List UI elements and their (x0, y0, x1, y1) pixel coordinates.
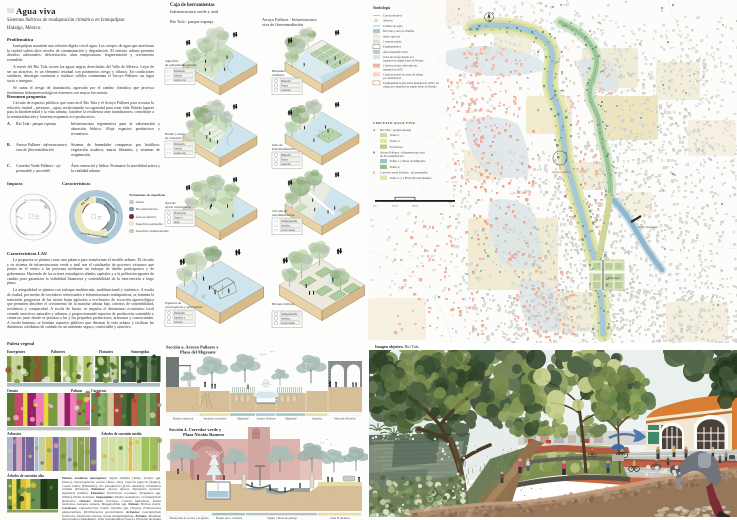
svg-text:inundación según Atlas de Ries: inundación según Atlas de Riesgo (383, 59, 424, 63)
svg-text:Fuente comercial: Fuente comercial (173, 417, 194, 421)
svg-text:efecto comunitario: efecto comunitario (165, 205, 191, 209)
svg-text:Semipermeable: Semipermeable (281, 220, 298, 223)
svg-text:Permeable: Permeable (174, 70, 186, 73)
svg-text:Equipamientos: Equipamientos (383, 45, 402, 49)
svg-text:Andador: Andador (312, 417, 323, 421)
svg-text:Franco: Franco (281, 85, 289, 88)
svg-text:Andador recreativo: Andador recreativo (203, 417, 227, 421)
svg-text:Fuente seca / Cisterna: Fuente seca / Cisterna (216, 516, 243, 520)
svg-text:de fitorremediación: de fitorremediación (380, 154, 404, 158)
svg-text:Plaza Nicolás Romero: Plaza Nicolás Romero (183, 432, 225, 437)
svg-text:inundación t100: inundación t100 (383, 67, 403, 71)
svg-text:Producción: Producción (174, 212, 187, 215)
svg-text:Río Tula y Arroyo Padilla: Río Tula y Arroyo Padilla (383, 29, 415, 33)
svg-text:Tramo 2: Tramo 2 (390, 165, 401, 169)
svg-text:riesgo por inundación según At: riesgo por inundación según Atlas de Rie… (383, 85, 437, 89)
svg-text:Tramo 2: Tramo 2 (390, 139, 401, 143)
svg-text:aireación: aireación (281, 89, 291, 92)
svg-text:A: A (372, 128, 375, 132)
svg-text:fitorremediación: fitorremediación (272, 147, 295, 151)
svg-text:Ecobarrios: Ecobarrios (390, 145, 404, 149)
svg-text:Humedal: Humedal (281, 154, 291, 157)
svg-text:0 m: 0 m (373, 205, 377, 208)
svg-text:aireación: aireación (281, 163, 291, 166)
svg-text:Permeable: Permeable (174, 143, 186, 146)
svg-text:acceso medio: acceso medio (281, 322, 296, 325)
svg-text:Área inundable t100: Área inundable t100 (383, 49, 408, 54)
svg-text:Árboles: Árboles (383, 18, 393, 23)
svg-text:Semipermeable: Semipermeable (281, 313, 298, 316)
svg-text:de adoquinado esponja: de adoquinado esponja (165, 63, 197, 67)
svg-text:Suelo agrícola: Suelo agrícola (383, 34, 401, 38)
svg-text:Brumas hídricas: Brumas hídricas (272, 302, 295, 306)
svg-text:Simbología: Simbología (373, 6, 390, 10)
svg-text:Humedal: Humedal (238, 417, 249, 421)
svg-text:de retención: de retención (165, 136, 182, 140)
svg-text:terreno alto: terreno alto (174, 79, 187, 82)
svg-text:Canales de agua: Canales de agua (383, 24, 403, 28)
svg-text:Andador,: Andador, (281, 318, 291, 321)
svg-text:Río Tula - parque esponja: Río Tula - parque esponja (380, 128, 412, 132)
svg-text:Tramo 1: Tramo 1 (390, 133, 401, 137)
svg-text:Curvas de nivel: Curvas de nivel (383, 14, 402, 18)
svg-text:Corredor verde Pallares - eje: Corredor verde Pallares - eje permeable (380, 171, 428, 175)
svg-text:por inundación: por inundación (383, 76, 402, 80)
svg-text:Arroyo Pallares: Arroyo Pallares (257, 417, 277, 421)
svg-text:250 m: 250 m (392, 205, 398, 208)
svg-text:Humedal: Humedal (286, 417, 297, 421)
svg-text:Andador y: Andador y (174, 317, 186, 320)
svg-text:500 m: 500 m (412, 205, 418, 208)
svg-text:Calle N. Romero: Calle N. Romero (330, 516, 351, 520)
svg-text:Jagüey / Plaza de garrige: Jagüey / Plaza de garrige (267, 516, 298, 520)
svg-text:Andador,: Andador, (281, 225, 291, 228)
svg-text:Permeable: Permeable (174, 312, 186, 315)
svg-text:acceso medio: acceso medio (281, 229, 296, 232)
svg-text:arboreto: arboreto (174, 321, 183, 324)
svg-text:N: N (492, 11, 495, 15)
svg-text:movilidad activa: movilidad activa (272, 213, 295, 217)
svg-text:1 km: 1 km (450, 205, 455, 208)
svg-text:Mercado Morelos: Mercado Morelos (334, 417, 356, 421)
svg-text:Ornato y: Ornato y (174, 217, 184, 220)
svg-text:Plaza del Migrante: Plaza del Migrante (180, 350, 216, 355)
svg-text:Tramo 1 y 2 Plaza Nicolás Rome: Tramo 1 y 2 Plaza Nicolás Romero (390, 176, 433, 180)
svg-text:Imagen objetivo. Río Tula: Imagen objetivo. Río Tula (375, 344, 419, 349)
svg-text:juego: juego (173, 221, 180, 224)
svg-text:Plataforma de acceso a la igle: Plataforma de acceso a la iglesia (169, 516, 209, 520)
svg-text:Humedal: Humedal (281, 80, 291, 83)
svg-text:Aislada: Aislada (174, 148, 183, 151)
svg-text:convergencia y apreciación: convergencia y apreciación (165, 305, 203, 309)
svg-text:Franco: Franco (281, 159, 289, 162)
svg-text:Construcciones: Construcciones (383, 40, 402, 44)
svg-text:terreno alto: terreno alto (174, 152, 187, 155)
svg-text:Aislada: Aislada (174, 75, 183, 78)
svg-text:artificial: artificial (272, 73, 284, 77)
svg-text:CIRCUITO AGUA VIVA: CIRCUITO AGUA VIVA (373, 121, 415, 125)
svg-text:B: B (372, 150, 375, 154)
svg-text:Tramo 1 y Plaza del Migrante: Tramo 1 y Plaza del Migrante (390, 159, 426, 163)
